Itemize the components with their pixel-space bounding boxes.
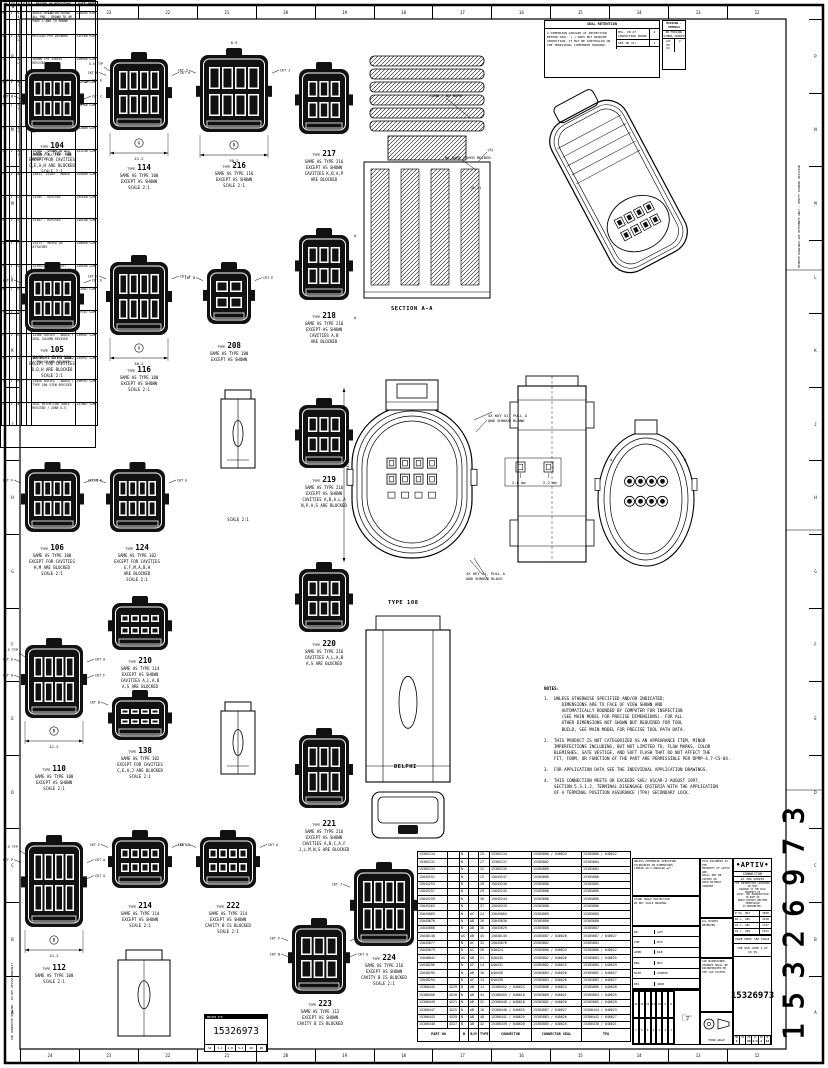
type-prefix: TYPE (128, 660, 138, 664)
cell: 15305886 (582, 896, 631, 903)
cell: N (460, 1021, 469, 1028)
figure-type-222: CKT GCKT A (178, 830, 278, 888)
zone-label: 23 (79, 6, 138, 19)
cell: 30 (479, 896, 490, 903)
cell: 15045679 (418, 948, 448, 955)
border-zones-top: 24232221201918171615141312 (20, 6, 786, 19)
figure-tpa-side (118, 950, 170, 1036)
cell: 4X29 (448, 1014, 460, 1021)
cell: 15305886 / 040628 (582, 985, 631, 992)
cell: 15305886 (532, 896, 582, 903)
cell: N (460, 874, 469, 881)
figure-label-type-112: TYPE 112SAME AS TYPE 100SCALE 2:1 (4, 962, 104, 985)
parts-row: 15048296·NAF2404043115305882 / 040625153… (418, 962, 631, 969)
type-prefix: TYPE (128, 750, 138, 754)
cell: 15306449 (418, 999, 448, 1006)
zone-label: L (6, 240, 19, 314)
cell: N (460, 977, 469, 984)
cell: · (448, 925, 460, 932)
parts-row: 153064434X29NAB4815306441 / 040629153058… (418, 1014, 631, 1021)
callout-5: 4X KEY G1, PULL A AND SHROUD BLANK (488, 414, 527, 424)
cell: 15306442 / 040627 (582, 1014, 631, 1021)
callout-4: SECTION A-A (391, 306, 433, 313)
figure-label-type-208: TYPE 208SAME AS TYPE 100EXCEPT AS SHOWN (179, 340, 279, 363)
type-number: 219 (322, 475, 336, 484)
cell: 15305886 / 040622 (582, 852, 631, 859)
svg-text:41.2: 41.2 (49, 744, 58, 749)
type-number: 114 (137, 163, 151, 172)
figure-label-line: A,S ARE BLOCKED (90, 684, 190, 690)
hand-stamp-icon: ☞ (675, 991, 699, 1044)
stamp-grid-cell: 1 (668, 1018, 674, 1045)
figure-label-line: SCALE 2:1 (89, 185, 189, 191)
type-number: 214 (138, 901, 152, 910)
cell: 040424 (490, 948, 532, 955)
missing-cell: LOT NO (D) (663, 39, 675, 52)
type-number: 105 (50, 345, 64, 354)
material-cell: PA L, GRV (734, 929, 760, 934)
figure-label-line: SCALE 2:1 (90, 774, 190, 780)
cell: N (460, 948, 469, 955)
parts-row: 15045670·NAB26150456301530588615305888 (418, 918, 631, 925)
cell: 15305882 / 040626 (532, 955, 582, 962)
cell: 15048294 (418, 977, 448, 984)
svg-text:CKT B: CKT B (270, 952, 280, 956)
parts-header-cell: TYPE (479, 1029, 490, 1042)
material-cell: 1518 (760, 917, 771, 922)
figure-label-line: ARE BLOCKED (274, 177, 374, 183)
zone-label: 22 (138, 1049, 197, 1062)
cell: 15045245 (490, 888, 532, 895)
callout-8: 2.2 mm (543, 481, 557, 486)
cell: 15045247 (490, 874, 532, 881)
third-angle-projection-icon (701, 1013, 732, 1035)
cell: 15306439 / 040626 (490, 1021, 532, 1028)
approval-cell: CHK (633, 940, 655, 944)
zone-label: P (809, 19, 822, 93)
approval-row: DRGJM (633, 927, 699, 937)
cell: AB (469, 925, 479, 932)
parts-header-cell: TPA (582, 1029, 631, 1042)
parts-header-cell: CONNECTOR SEAL (532, 1029, 582, 1042)
zone-label: L (809, 240, 822, 314)
cell: 15306438 / 040621 (582, 1021, 631, 1028)
cell: · (448, 888, 460, 895)
cell: 48 (479, 1014, 490, 1021)
cell: AB (469, 999, 479, 1006)
figure-label-type-138: TYPE 138SAME AS TYPE 102EXCEPT FOR CAVIT… (90, 745, 190, 780)
figure-label-line: TYPE 210 (90, 655, 190, 666)
figure-label-line: A,S ARE BLOCKED (274, 661, 374, 667)
approval-cell: RJH (655, 940, 699, 944)
cell: AF (469, 977, 479, 984)
svg-text:CKT C: CKT C (92, 95, 102, 99)
cad-note-line: THE CAD SYSTEM. (702, 971, 731, 975)
type-number: 223 (318, 999, 332, 1008)
parts-row: 153064454X29NAB1415306452 / 040624153058… (418, 985, 631, 992)
cell: 16 (479, 970, 490, 977)
figure-label-type-214: TYPE 214SAME AS TYPE 114EXCEPT AS SHOWNS… (90, 900, 190, 929)
border-zones-right: PNMLKJHGFEDCBA (809, 19, 822, 1049)
cell: 15048145 (490, 933, 532, 940)
seal-retention-row: SEE IN (D)2 (617, 40, 659, 47)
figure-label-type-110: TYPE 110SAME AS TYPE 100EXCEPT AS SHOWNS… (4, 763, 104, 792)
cell: AB (469, 1007, 479, 1014)
cell: · (448, 970, 460, 977)
figure-label-line: TYPE 112 (4, 962, 104, 973)
figure-label-line: EXCEPT AS SHOWN (179, 357, 279, 363)
cell: N (460, 925, 469, 932)
figure-label-type-216: TYPE 216SAME AS TYPE 116EXCEPT AS SHOWNS… (184, 160, 284, 189)
type-number: 110 (52, 764, 66, 773)
cell: 27 (479, 859, 490, 866)
seal-retention-row: MOL. IN AT INSPECTING ROUND2 (617, 29, 659, 40)
cell: - (469, 852, 479, 859)
zone-label: 19 (315, 6, 374, 19)
cell: N (460, 970, 469, 977)
callout-9: 24.2 (346, 461, 351, 470)
cell: 15045257 (418, 888, 448, 895)
approval-cell: APPD (633, 950, 655, 954)
zone-label: 17 (432, 1049, 491, 1062)
svg-text:CKT S: CKT S (88, 275, 98, 279)
cell: 15045253 (418, 881, 448, 888)
cell: 32 (479, 999, 490, 1006)
cell: 15305886 (532, 874, 582, 881)
cell: 15045246 (490, 881, 532, 888)
cell: 30 (479, 925, 490, 932)
cell: 24 (479, 962, 490, 969)
cell: 15305886 (532, 903, 582, 910)
border-zones-bottom: 24232221201918171615141312 (20, 1049, 786, 1062)
figure-delphi-body (366, 616, 450, 782)
figure-label-line: TYPE 116 (89, 364, 189, 375)
type-prefix: TYPE (216, 905, 226, 909)
figure-label-type-217: TYPE 217SAME AS TYPE 216EXCEPT AS SHOWNC… (274, 148, 374, 183)
aptiv-logo: •APTIV• (734, 859, 771, 872)
cell: 040431 (490, 962, 532, 969)
missing-symbols-subtitle: NO MISSING SYMBOL MARKED (663, 31, 685, 38)
cell: 15305133 (418, 866, 448, 873)
svg-text:41.2: 41.2 (49, 953, 58, 958)
callout-2: (A) (487, 148, 494, 153)
cell: 15305885 / 040629 (582, 999, 631, 1006)
cell: 15305884 (582, 859, 631, 866)
figure-label-type-104: TYPE 104SAME AS TYPE 100EXCEPT FOR CAVIT… (2, 140, 102, 175)
cell: 26 (479, 948, 490, 955)
figure-label-line: TYPE 222 (178, 900, 278, 911)
cell: 15305889 (582, 911, 631, 918)
seal-cell: MOL. IN AT INSPECTING ROUND (617, 29, 650, 39)
zone-label: A (6, 976, 19, 1050)
cell: 15305884 (582, 940, 631, 947)
cell: 15305886 (532, 918, 582, 925)
figure-label-line: CAVITY B IS BLOCKED (270, 1021, 370, 1027)
svg-text:CKT B: CKT B (88, 479, 98, 483)
legal-paragraph: THE INFORMATION CONTAINED IN THISDRAWING… (734, 882, 771, 911)
figure-label-line: SCALE 2:1 (4, 979, 104, 985)
zone-label: 13 (668, 6, 727, 19)
cell: 15306456 (418, 992, 448, 999)
cell: 32 (479, 940, 490, 947)
figure-rear-view (595, 420, 697, 566)
title-footer-cell: OF13 (765, 1036, 771, 1044)
stamp-box: 1413121110987654321 ☞ (632, 990, 700, 1045)
notes-title: NOTES: (544, 686, 768, 692)
svg-text:CKT E: CKT E (263, 276, 273, 280)
parts-row: 15045251·N-23150452471530588615305886 (418, 874, 631, 881)
note-number: 1. (544, 696, 554, 733)
figure-type-114: CKT PCKT H4.5 TYPA41.2 (88, 52, 190, 161)
note-line: FOR APPLICATION DATA SEE THE INDIVIDUAL … (554, 767, 708, 773)
figure-delphi-latch (372, 792, 444, 838)
type-prefix: TYPE (312, 479, 322, 483)
cell: 15305883 / 040627 (582, 977, 631, 984)
zone-label: C (809, 828, 822, 902)
type-number: 112 (52, 963, 66, 972)
svg-text:B: B (53, 938, 56, 943)
type-prefix: TYPE (42, 768, 52, 772)
type-prefix: TYPE (312, 823, 322, 827)
figure-label-line: SCALE 2:1 (2, 169, 102, 175)
cell: 15305885 (582, 881, 631, 888)
parts-row: 153064494X21NAB3215306448 / 040618153058… (418, 999, 631, 1006)
note-item-2: 2.THIS PRODUCT IS NOT CATEGORIZED AS AN … (544, 738, 768, 762)
stamp-grid: 1413121110987654321 (633, 991, 675, 1044)
cell: 15305882 / 040627 (582, 970, 631, 977)
cell: · (448, 940, 460, 947)
cell: N (460, 962, 469, 969)
figure-label-type-222: TYPE 222SAME AS TYPE 214EXCEPT AS SHOWNC… (178, 900, 278, 935)
type-number: 216 (232, 161, 246, 170)
callout-10: TYPE 108 (388, 600, 419, 607)
cell: AB (469, 970, 479, 977)
note-number: 3. (544, 767, 554, 773)
cell: · (448, 911, 460, 918)
figure-type-216: CKT SCKT J8.5B50.2 (178, 41, 290, 163)
material-cell: 1747 (760, 923, 771, 928)
figure-label-line: SCALE 2:1 (4, 786, 104, 792)
cell: AB (469, 933, 479, 940)
cell: 15048148 (418, 933, 448, 940)
cell: 15305883 / 040626 (532, 1014, 582, 1021)
figure-label-type-116: TYPE 116SAME AS TYPE 100EXCEPT AS SHOWNS… (89, 364, 189, 393)
cell: · (448, 977, 460, 984)
svg-text:CKT E: CKT E (92, 279, 102, 283)
approval-cell: ENG (633, 961, 655, 965)
figure-label-type-124: TYPE 124SAME AS TYPE 102EXCEPT FOR CAVIT… (87, 542, 187, 583)
figure-label-type-105: TYPE 105SAME AS TYPE 100EXCEPT FOR CAVIT… (2, 344, 102, 379)
made-from-cell: MADE FROM: SEE TABLE (734, 936, 771, 944)
callout-6: 4X KEY G1, PULL A AND SHROUD BLOCK (466, 572, 505, 582)
footer-value: 1 (759, 1040, 764, 1043)
cell: 15305882 (532, 859, 582, 866)
cell: - (469, 881, 479, 888)
cell: N (460, 859, 469, 866)
cell: AB (469, 918, 479, 925)
cell: 040435 (490, 955, 532, 962)
figure-tpa-2 (221, 702, 255, 774)
cell: 15045688 (418, 925, 448, 932)
svg-text:CKT F: CKT F (90, 843, 100, 847)
callout-0: CONN - NO NAME (430, 94, 462, 99)
approval-cell: DR (633, 930, 655, 934)
zone-label: J (809, 387, 822, 461)
figure-label-line: TYPE 110 (4, 763, 104, 774)
cell: - (469, 874, 479, 881)
cell: 15306445 (418, 985, 448, 992)
parts-row: 153064474X25NAB1815306446 / 040625153058… (418, 1007, 631, 1014)
cell: 4X27 (448, 1021, 460, 1028)
zone-label: 23 (79, 1049, 138, 1062)
cell: 4X28 (448, 992, 460, 999)
figure-label-line: TYPE 114 (89, 162, 189, 173)
svg-text:4.5 TYP: 4.5 TYP (89, 62, 103, 66)
type-number: 222 (226, 901, 240, 910)
cell: 15305882 / 040625 (532, 962, 582, 969)
cell: 42 (479, 1021, 490, 1028)
zone-label: G (809, 534, 822, 608)
svg-text:CKT G: CKT G (177, 479, 187, 483)
use-code-cell: THE USE CODE 1 AT CD 59 (734, 944, 771, 957)
figure-label-line: SCALE 2:1 (178, 929, 278, 935)
type-number: 106 (50, 543, 64, 552)
cell: - (469, 866, 479, 873)
approval-cell: DATE (633, 971, 655, 975)
callout-3: (8.2) (470, 186, 481, 191)
parts-row: 15045263·N-37150452431530588615305886 (418, 903, 631, 910)
parts-row: 15045259·N-30150452441530588615305886 (418, 896, 631, 903)
cell: 18 (479, 1007, 490, 1014)
cell: 4X29 (448, 985, 460, 992)
parts-row: 153064404X27NAB4215306439 / 040626153058… (418, 1021, 631, 1028)
parts-row: 15048295·NAB1604043015305883 / 040626153… (418, 970, 631, 977)
figure-type-116: CKT SCKT JA50.2 (88, 255, 190, 366)
figure-label-line: TYPE 218 (274, 310, 374, 321)
callout-14: A (354, 234, 356, 239)
cell: AC (469, 911, 479, 918)
cell: 37 (479, 903, 490, 910)
parts-row: 15305134·N-231530513415305886 / 04062415… (418, 852, 631, 859)
label-cell: 5-1 (215, 1045, 225, 1051)
svg-text:A: A (138, 141, 141, 146)
figure-label-line: SCALE 2:1 (87, 577, 187, 583)
cell: 32 (479, 866, 490, 873)
svg-text:CKT B: CKT B (90, 701, 100, 705)
label-cell: 2B (257, 1045, 267, 1051)
figure-label-type-221: TYPE 221SAME AS TYPE 216EXCEPT AS SHOWNC… (274, 818, 374, 853)
cell: 4X21 (448, 999, 460, 1006)
svg-text:CKT F: CKT F (270, 936, 280, 940)
type-number: 221 (322, 819, 336, 828)
parts-row: 15045665·NAC24150456641530588915305889 (418, 911, 631, 918)
figure-label-line: SCALE 2:1 (188, 517, 288, 523)
parts-header-cell: PART NO (418, 1029, 460, 1042)
cell: 15306443 (418, 1014, 448, 1021)
zone-label: N (809, 93, 822, 167)
cell: 45 (479, 933, 490, 940)
figure-label-line: TYPE 104 (2, 140, 102, 151)
figure-label-type-218: TYPE 218SAME AS TYPE 216EXCEPT AS SHOWNC… (274, 310, 374, 345)
zone-label: 12 (727, 6, 786, 19)
legal-line: IS PROHIBITED. (735, 906, 770, 909)
svg-text:CKT G: CKT G (178, 843, 188, 847)
cell: 15045259 (418, 896, 448, 903)
missing-symbols-row: LOT NO (D)2 (663, 38, 685, 52)
cell: 14 (479, 977, 490, 984)
zone-label: B (809, 902, 822, 976)
material-cell: 2541 (760, 929, 771, 934)
footer-value: 13 (765, 1040, 770, 1043)
cell: - (469, 896, 479, 903)
cell: N (460, 1014, 469, 1021)
figure-iso-view (534, 78, 695, 280)
figure-label-line: SCALE 2:1 (89, 387, 189, 393)
stamp-grid-row: 7654321 (633, 1018, 674, 1045)
type-number: 116 (137, 365, 151, 374)
rights-notice-box: ALL RIGHTS RESERVED. (700, 918, 733, 958)
cell: 21 (479, 955, 490, 962)
type-number: 208 (227, 341, 241, 350)
material-cell: PA L, GEL (734, 923, 760, 928)
cell: - (469, 859, 479, 866)
figure-label-line: TYPE 223 (270, 998, 370, 1009)
svg-text:CKT E: CKT E (92, 79, 102, 83)
zone-label: 12 (727, 1049, 786, 1062)
footer-value: 59 (746, 1040, 751, 1043)
callout-13: DELPHI (394, 764, 417, 771)
figure-type-210 (108, 596, 172, 650)
cell: 15305887 / 040627 (582, 933, 631, 940)
note-number: 4. (544, 778, 554, 796)
cell: - (469, 888, 479, 895)
figure-type-219 (295, 398, 353, 468)
note-item-4: 4.THIS CONNECTION MEETS OR EXCEEDS SAE/ … (544, 778, 768, 796)
footer-label: S4 (741, 1036, 744, 1039)
cell: 15305883 (582, 866, 631, 873)
svg-text:CKT A: CKT A (95, 858, 105, 862)
parts-row: 15045688·NAB30150456291530588815305887 (418, 925, 631, 932)
callout-7: 2.8 mm (512, 481, 526, 486)
label-cell: S4 (205, 1045, 215, 1051)
approval-cell: GJM (655, 930, 699, 934)
seal-cell: 2 (650, 40, 659, 46)
cell: 28 (479, 881, 490, 888)
projection-notes-box: THIRD ANGLE PROJECTIONDO NOT SCALE DRAWI… (632, 896, 700, 926)
note-item-3: 3.FOR APPLICATION DATA SEE THE INDIVIDUA… (544, 767, 768, 773)
zone-label: 24 (20, 6, 79, 19)
cell: 040430 (490, 970, 532, 977)
zone-label: F (809, 608, 822, 682)
footer-value: 2:1 (752, 1040, 757, 1043)
stamp-grid-row: 141312111098 (633, 991, 674, 1018)
figure-label-line: ARE BLOCKED (274, 339, 374, 345)
parts-row: 15048042·ASAB2104043515305882 / 04062615… (418, 955, 631, 962)
figure-type-124: CKT BCKT G (88, 462, 187, 532)
projection-symbol-box: THIRD ANGLE (700, 1012, 733, 1045)
note-number: 2. (544, 738, 554, 762)
zone-label: M (6, 166, 19, 240)
cell: 15306448 / 040618 (490, 999, 532, 1006)
cell: AS (460, 955, 469, 962)
approval-row: ENGMAS (633, 958, 699, 968)
zone-label: 19 (315, 1049, 374, 1062)
cell: N (460, 911, 469, 918)
cell: AB (469, 955, 479, 962)
figure-label-line: N,P,A,S ARE BLOCKED (274, 503, 374, 509)
seal-cell: 2 (650, 29, 659, 39)
approvals-box: DRGJMCHKRJHAPPDDLBENGMASDATE23DE05REL4R2… (632, 926, 700, 990)
